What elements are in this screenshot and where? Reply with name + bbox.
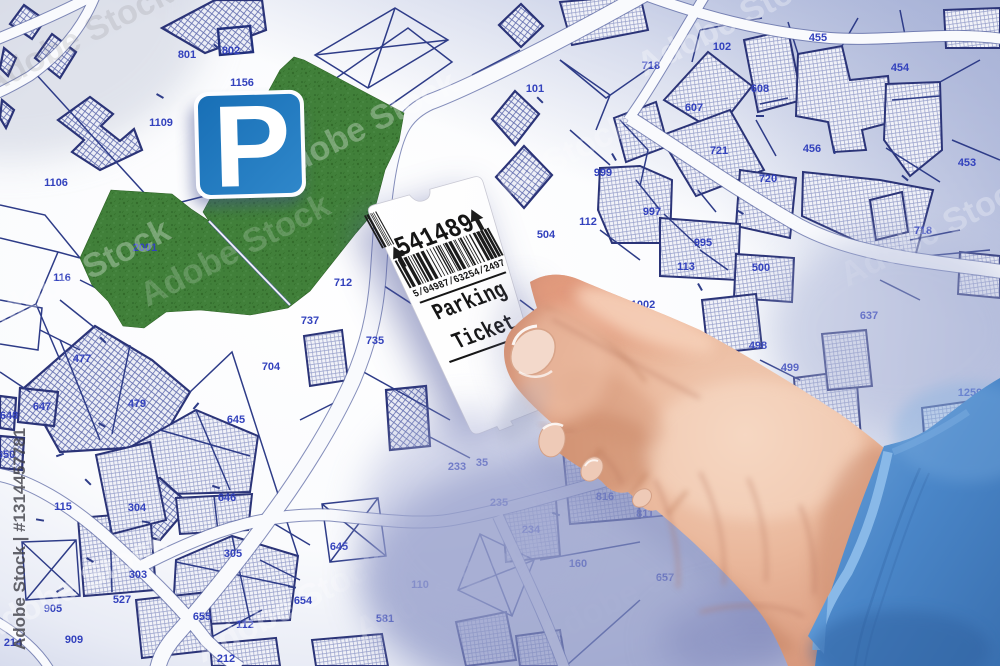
svg-text:477: 477: [73, 353, 91, 365]
svg-text:801: 801: [178, 49, 196, 61]
svg-text:305: 305: [224, 548, 242, 560]
svg-text:527: 527: [113, 594, 131, 606]
svg-text:101: 101: [526, 83, 544, 95]
svg-text:1106: 1106: [44, 177, 68, 189]
svg-text:498: 498: [749, 340, 767, 352]
svg-text:720: 720: [759, 173, 777, 185]
svg-text:454: 454: [891, 62, 910, 74]
svg-text:608: 608: [751, 83, 769, 95]
svg-text:647: 647: [33, 401, 51, 413]
svg-text:995: 995: [694, 237, 712, 249]
svg-text:607: 607: [685, 102, 703, 114]
svg-text:453: 453: [958, 157, 976, 169]
svg-text:645: 645: [330, 541, 348, 553]
svg-text:455: 455: [809, 32, 827, 44]
svg-text:721: 721: [710, 145, 728, 157]
svg-text:456: 456: [803, 143, 821, 155]
svg-text:112: 112: [579, 216, 597, 228]
svg-text:Adobe Stock | #1314457781: Adobe Stock | #1314457781: [10, 428, 29, 650]
svg-text:648: 648: [0, 410, 18, 422]
svg-text:909: 909: [65, 634, 83, 646]
svg-text:645: 645: [227, 414, 245, 426]
svg-text:479: 479: [128, 398, 146, 410]
svg-text:802: 802: [222, 45, 240, 57]
svg-text:504: 504: [537, 229, 556, 241]
svg-text:735: 735: [366, 335, 384, 347]
svg-text:500: 500: [752, 262, 770, 274]
svg-text:999: 999: [594, 167, 612, 179]
svg-text:P: P: [212, 80, 293, 212]
svg-text:115: 115: [54, 501, 72, 513]
svg-text:304: 304: [128, 502, 147, 514]
svg-text:113: 113: [677, 261, 695, 273]
svg-text:737: 737: [301, 315, 319, 327]
svg-text:712: 712: [334, 277, 352, 289]
svg-text:704: 704: [262, 361, 281, 373]
svg-text:646: 646: [218, 492, 236, 504]
svg-text:1109: 1109: [149, 117, 173, 129]
svg-text:997: 997: [643, 206, 661, 218]
svg-text:655: 655: [193, 611, 211, 623]
